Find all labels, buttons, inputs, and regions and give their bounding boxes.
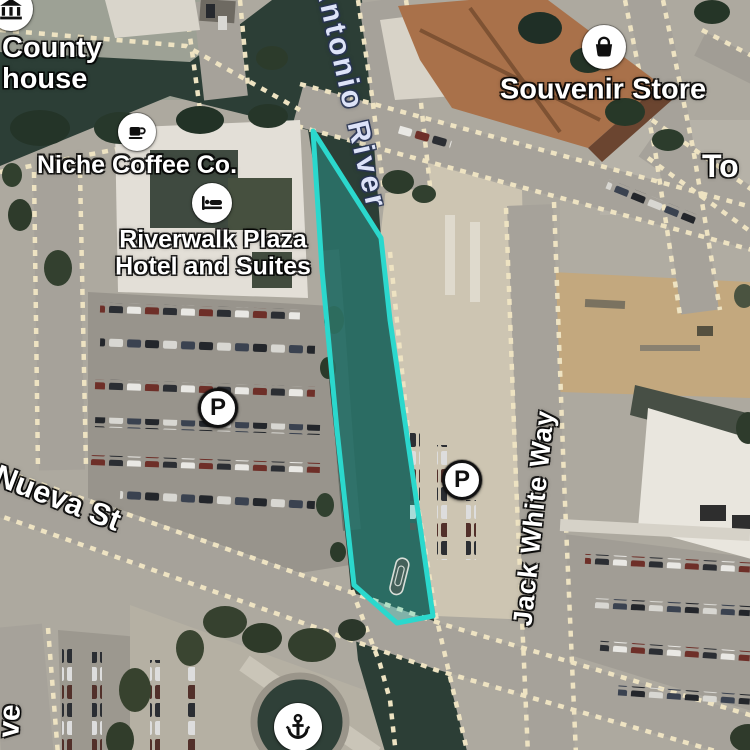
river-landing-pin[interactable]: [274, 703, 322, 750]
courthouse-label-line2: house: [2, 64, 102, 95]
parking-east-pin[interactable]: P: [442, 460, 482, 500]
satellite-map-viewport[interactable]: P P County house Niche Coffee Co. Riverw…: [0, 0, 750, 750]
souvenir-store-label[interactable]: Souvenir Store: [500, 75, 706, 106]
anchor-icon: [283, 712, 313, 742]
bed-icon: [200, 191, 224, 215]
parking-west-letter: P: [210, 394, 226, 422]
hotel-label-line1: Riverwalk Plaza: [115, 227, 311, 254]
hotel-label-line2: Hotel and Suites: [115, 253, 311, 280]
coffee-shop-poi-pin[interactable]: [118, 113, 156, 151]
coffee-shop-label[interactable]: Niche Coffee Co.: [37, 152, 237, 179]
coffee-icon: [126, 121, 148, 143]
courthouse-label[interactable]: County house: [2, 33, 102, 94]
bank-icon: [0, 0, 24, 22]
bag-icon: [591, 34, 617, 60]
parking-west-pin[interactable]: P: [198, 388, 238, 428]
parking-east-letter: P: [454, 466, 470, 494]
courthouse-label-line1: County: [2, 33, 102, 64]
edge-street-label-left: ve: [0, 704, 27, 739]
hotel-label[interactable]: Riverwalk Plaza Hotel and Suites: [115, 227, 311, 280]
edge-street-label-right: To: [702, 150, 739, 184]
satellite-imagery: [0, 0, 750, 750]
souvenir-store-poi-pin[interactable]: [582, 25, 626, 69]
hotel-poi-pin[interactable]: [192, 183, 232, 223]
